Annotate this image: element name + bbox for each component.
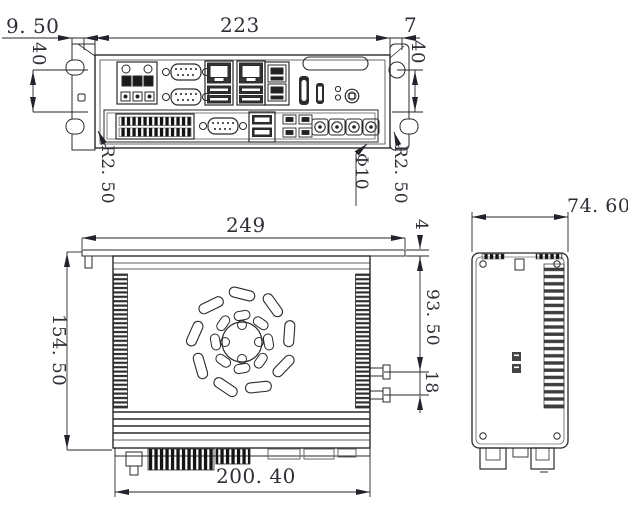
plan-view	[67, 237, 429, 497]
side-dimension-lines	[472, 212, 568, 252]
vent-slot	[303, 57, 368, 70]
dim-side-body-width: 74. 60	[567, 196, 628, 216]
dim-hole-diameter: Φ10	[351, 153, 371, 190]
dim-bracket-offset: 9. 50	[6, 16, 59, 36]
dim-notch-radius-left: R2. 50	[97, 145, 117, 204]
db9-serial-port-top1	[163, 64, 210, 80]
mounting-plate	[82, 250, 405, 256]
dual-usb-ports	[249, 112, 275, 142]
top-tab	[515, 259, 524, 270]
left-heatsink-fins	[114, 274, 128, 408]
mini-connectors-2x2	[283, 115, 312, 137]
antenna-connector-stubs	[370, 365, 390, 402]
dim-rear-to-antenna: 93. 50	[422, 289, 442, 346]
left-mounting-bracket	[66, 44, 95, 150]
right-heatsink-fins	[356, 274, 370, 408]
plate-tab	[85, 256, 92, 268]
hdmi-port	[299, 76, 309, 105]
io-terminal-block	[116, 114, 194, 139]
dual-port-stack	[265, 62, 289, 105]
mini-displayport	[316, 83, 324, 104]
db9-serial-port-bottom	[200, 118, 247, 134]
rj45-usb-combo-1	[205, 61, 233, 105]
dim-plan-body-width: 200. 40	[216, 466, 296, 486]
fan-vent	[184, 286, 299, 399]
dim-antenna-spacing: 18	[421, 371, 441, 394]
dim-notch-radius-right: R2. 50	[390, 145, 410, 204]
top-vents-left	[482, 254, 504, 259]
dim-body-depth: 154. 50	[48, 314, 68, 386]
bottom-feet	[480, 448, 554, 472]
side-view	[472, 212, 568, 472]
power-terminal-block	[117, 62, 157, 104]
dc-power-jack	[345, 89, 359, 103]
certification-labels	[512, 352, 521, 373]
dim-rear-body-width: 223	[220, 15, 260, 35]
dim-ear-width: 7	[404, 15, 417, 35]
drawing-sheet: 9. 50 223 7 40 40 R2. 50 Φ10 R2. 50 249 …	[0, 0, 628, 510]
side-heatsink-fins	[544, 264, 564, 408]
rj45-usb-combo-2	[237, 61, 265, 105]
db9-serial-port-top2	[163, 89, 210, 105]
dim-plate-thickness: 4	[411, 219, 431, 230]
dim-plate-width: 249	[226, 215, 266, 235]
dim-mount-height-right: 40	[407, 40, 427, 64]
dim-mount-height-left: 40	[28, 42, 48, 66]
sma-antenna-connectors	[312, 119, 379, 135]
drawing-linework	[0, 0, 628, 510]
top-vents-right	[536, 254, 562, 259]
status-leds	[335, 86, 340, 100]
